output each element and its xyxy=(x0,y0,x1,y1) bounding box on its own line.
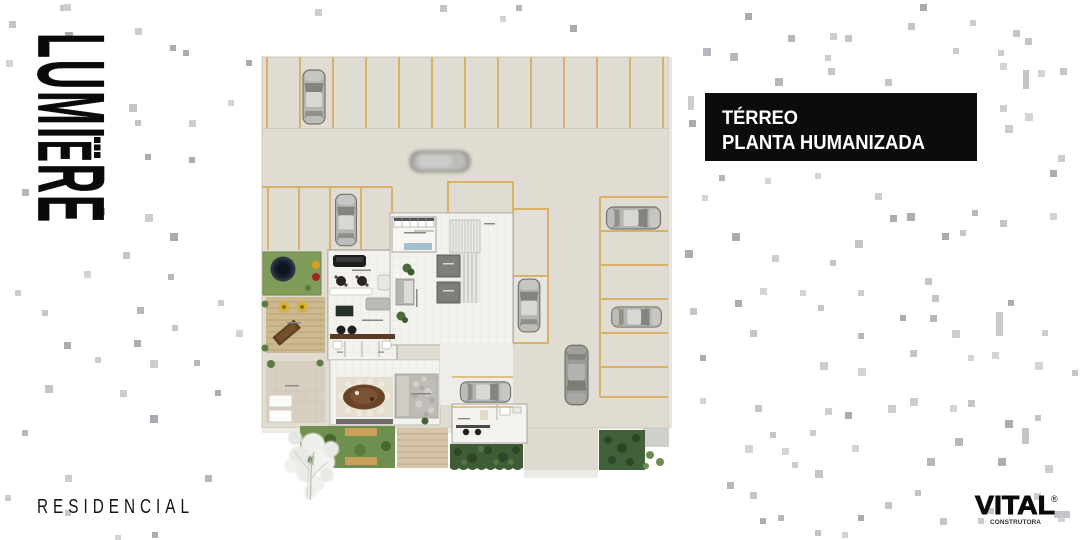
svg-text:PLANTA HUMANIZADA: PLANTA HUMANIZADA xyxy=(722,131,925,154)
svg-text:VITAL: VITAL xyxy=(975,490,1055,520)
svg-text:RESIDENCIAL: RESIDENCIAL xyxy=(37,496,194,518)
svg-text:®: ® xyxy=(1051,494,1058,504)
svg-text:LUMIERE: LUMIERE xyxy=(18,33,124,224)
svg-text:TÉRREO: TÉRREO xyxy=(722,106,798,129)
svg-text:CONSTRUTORA: CONSTRUTORA xyxy=(990,519,1042,526)
